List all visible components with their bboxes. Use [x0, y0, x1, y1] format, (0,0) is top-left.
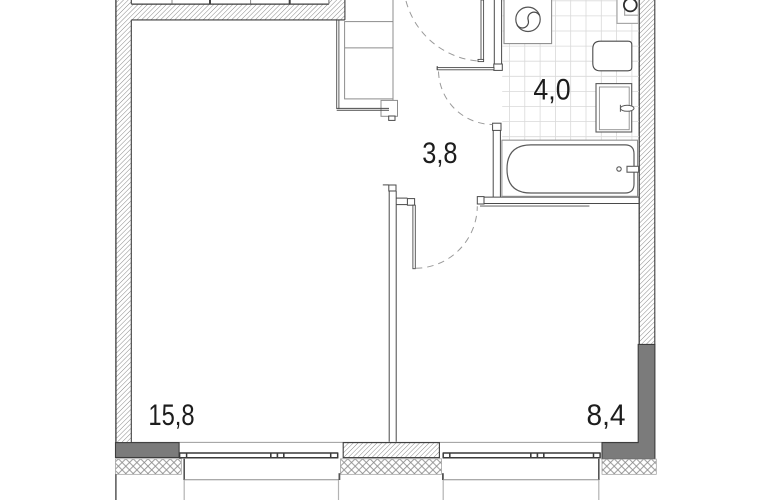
svg-text:3,8: 3,8: [422, 137, 457, 170]
svg-text:15,8: 15,8: [148, 399, 194, 432]
svg-text:4,0: 4,0: [533, 73, 570, 106]
svg-text:8,4: 8,4: [587, 399, 626, 432]
